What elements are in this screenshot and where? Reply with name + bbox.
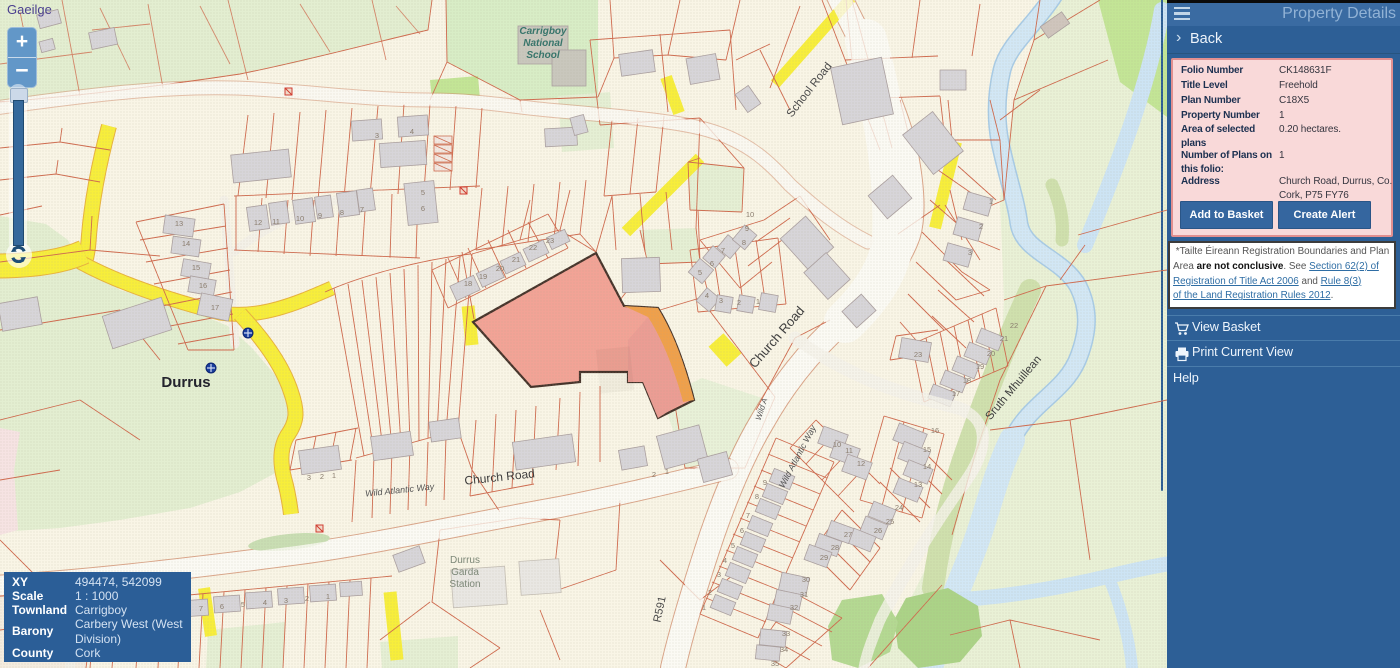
svg-text:27: 27 — [844, 530, 852, 539]
svg-text:Carrigboy: Carrigboy — [519, 26, 567, 37]
svg-text:22: 22 — [1010, 321, 1018, 330]
svg-text:31: 31 — [800, 590, 808, 599]
svg-text:10: 10 — [833, 440, 841, 449]
svg-text:3: 3 — [717, 570, 721, 579]
svg-text:8: 8 — [755, 492, 759, 501]
svg-text:2: 2 — [979, 222, 983, 231]
svg-text:5: 5 — [421, 188, 425, 197]
svg-text:30: 30 — [802, 575, 810, 584]
svg-text:Station: Station — [449, 579, 480, 590]
svg-text:32: 32 — [790, 603, 798, 612]
svg-text:6: 6 — [740, 526, 744, 535]
svg-text:6: 6 — [710, 259, 714, 268]
svg-text:6: 6 — [220, 602, 224, 611]
svg-text:10: 10 — [296, 214, 304, 223]
svg-text:25: 25 — [886, 517, 894, 526]
svg-text:4: 4 — [410, 127, 414, 136]
svg-text:28: 28 — [831, 543, 839, 552]
svg-text:13: 13 — [175, 219, 183, 228]
svg-text:1: 1 — [332, 471, 336, 480]
svg-text:15: 15 — [923, 445, 931, 454]
svg-text:33: 33 — [782, 629, 790, 638]
svg-text:9: 9 — [745, 224, 749, 233]
svg-text:22: 22 — [529, 243, 537, 252]
svg-text:1: 1 — [702, 603, 706, 612]
svg-text:5: 5 — [698, 268, 702, 277]
svg-text:19: 19 — [976, 362, 984, 371]
svg-text:2: 2 — [652, 470, 656, 479]
svg-text:Garda: Garda — [451, 567, 479, 578]
svg-text:2: 2 — [708, 588, 712, 597]
svg-text:26: 26 — [874, 526, 882, 535]
svg-text:16: 16 — [199, 281, 207, 290]
svg-text:Durrus: Durrus — [450, 555, 480, 566]
svg-text:19: 19 — [479, 272, 487, 281]
svg-text:3: 3 — [307, 473, 311, 482]
svg-text:1: 1 — [326, 592, 330, 601]
svg-text:1: 1 — [989, 197, 993, 206]
svg-text:7: 7 — [721, 246, 725, 255]
svg-text:18: 18 — [464, 279, 472, 288]
svg-text:7: 7 — [746, 511, 750, 520]
svg-text:23: 23 — [914, 350, 922, 359]
svg-text:3: 3 — [719, 296, 723, 305]
svg-text:National: National — [523, 38, 563, 49]
svg-text:10: 10 — [746, 210, 754, 219]
svg-text:9: 9 — [318, 211, 322, 220]
svg-text:Durrus: Durrus — [161, 374, 210, 391]
svg-text:13: 13 — [914, 480, 922, 489]
svg-text:1: 1 — [665, 467, 669, 476]
svg-text:35: 35 — [771, 659, 779, 668]
svg-text:4: 4 — [705, 291, 709, 300]
svg-text:12: 12 — [857, 459, 865, 468]
svg-text:11: 11 — [272, 217, 280, 226]
svg-text:20: 20 — [987, 349, 995, 358]
svg-text:2: 2 — [737, 298, 741, 307]
svg-text:12: 12 — [254, 218, 262, 227]
svg-text:15: 15 — [192, 263, 200, 272]
svg-text:24: 24 — [895, 503, 903, 512]
svg-text:4: 4 — [723, 556, 727, 565]
svg-text:3: 3 — [968, 248, 972, 257]
svg-text:17: 17 — [211, 303, 219, 312]
svg-text:2: 2 — [305, 594, 309, 603]
svg-text:7: 7 — [199, 604, 203, 613]
svg-text:20: 20 — [496, 264, 504, 273]
svg-text:School: School — [526, 50, 560, 61]
svg-text:23: 23 — [546, 236, 554, 245]
svg-text:9: 9 — [763, 478, 767, 487]
svg-text:8: 8 — [742, 238, 746, 247]
svg-text:6: 6 — [421, 204, 425, 213]
svg-text:14: 14 — [923, 462, 931, 471]
svg-text:2: 2 — [320, 472, 324, 481]
svg-text:34: 34 — [780, 645, 788, 654]
svg-text:11: 11 — [845, 446, 853, 455]
svg-text:4: 4 — [263, 598, 267, 607]
svg-text:16: 16 — [931, 426, 939, 435]
svg-text:21: 21 — [1000, 334, 1008, 343]
svg-text:1: 1 — [756, 297, 760, 306]
svg-text:5: 5 — [241, 600, 245, 609]
svg-text:5: 5 — [731, 541, 735, 550]
svg-text:21: 21 — [512, 255, 520, 264]
svg-text:18: 18 — [963, 376, 971, 385]
svg-text:14: 14 — [182, 239, 190, 248]
svg-text:17: 17 — [952, 389, 960, 398]
svg-text:3: 3 — [375, 131, 379, 140]
svg-text:8: 8 — [340, 208, 344, 217]
svg-text:29: 29 — [820, 553, 828, 562]
svg-text:7: 7 — [360, 205, 364, 214]
svg-text:3: 3 — [284, 596, 288, 605]
